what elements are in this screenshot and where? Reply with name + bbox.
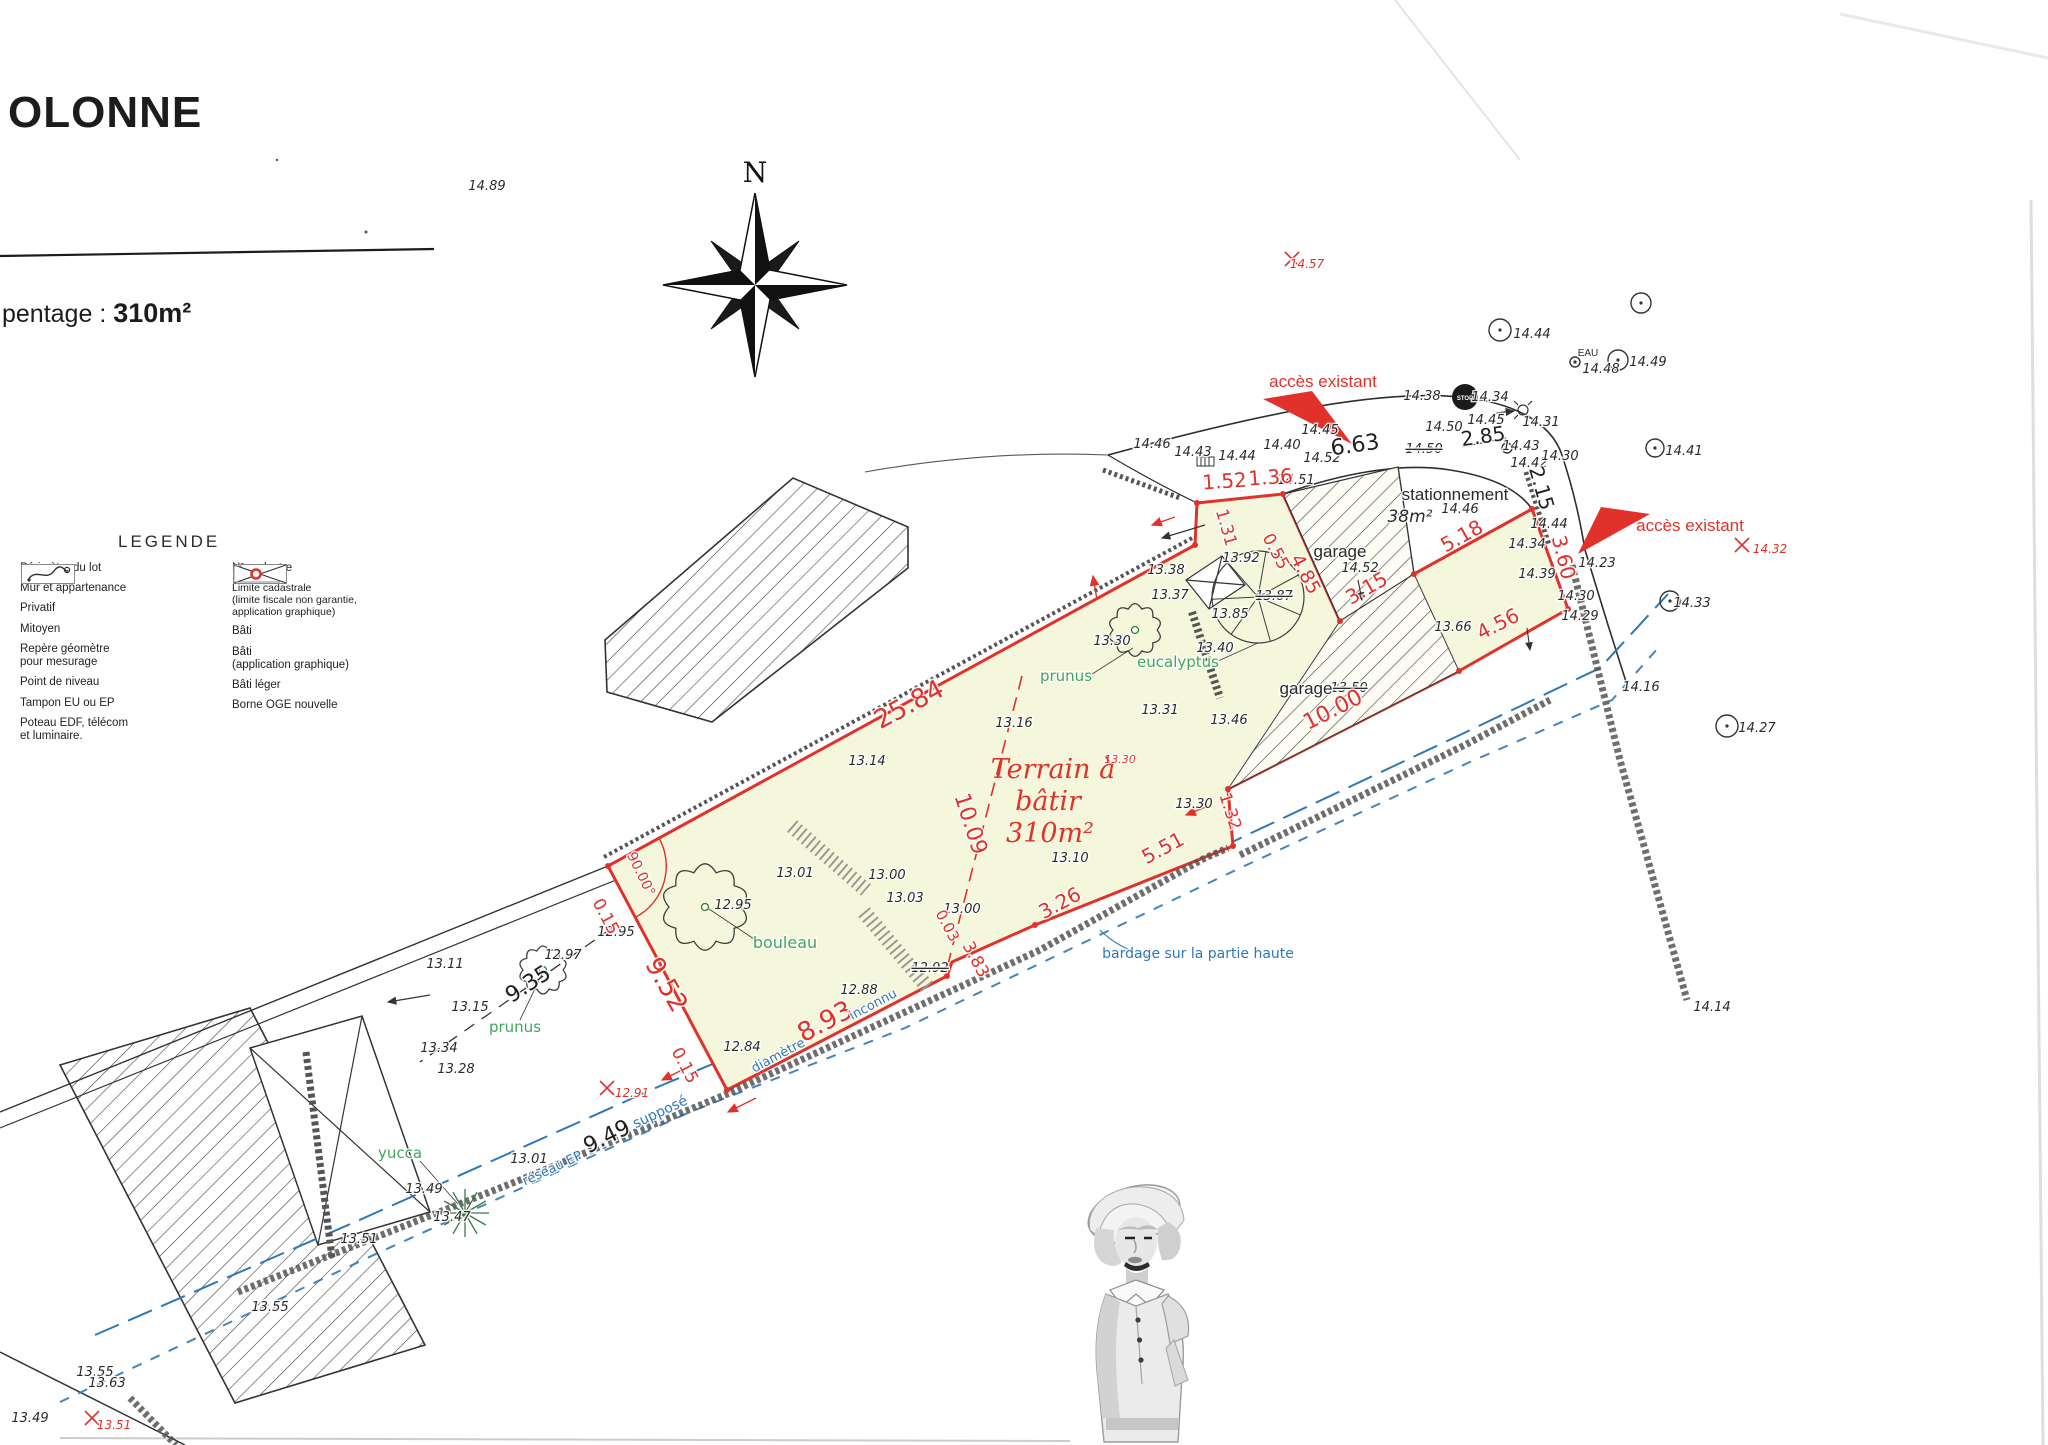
elevation-label: 14.50: [1405, 442, 1442, 457]
legend-item-niveau: 10.47 Point de niveau: [20, 676, 235, 689]
elevation-label: 13.92: [1222, 551, 1259, 566]
legend-item-borne: Borne OGE nouvelle: [232, 699, 447, 712]
legend-item-bati-app: Bâti (application graphique): [232, 646, 447, 672]
parcel-title: 310m²: [1006, 818, 1094, 849]
manhole-dot: [1498, 328, 1501, 331]
elevation-label: 14.41: [1665, 444, 1702, 459]
elevation-label: 14.49: [1629, 355, 1666, 370]
compass-rose: N: [663, 156, 847, 377]
manhole-dot: [1653, 446, 1656, 449]
red-point-label: 13.51: [97, 1418, 131, 1432]
survey-cross-icon: [1735, 538, 1749, 552]
elevation-label: 13.10: [1051, 851, 1088, 866]
vegetation-label: prunus: [489, 1018, 541, 1036]
tree-trunk: [702, 904, 709, 911]
feature-label: garage: [1314, 542, 1367, 561]
feature-label: EAU: [1578, 348, 1599, 359]
legend-right-column: AH n°742 N° cadastre Limite cadastrale (…: [232, 562, 447, 720]
dimension-label: 9.49: [580, 1115, 635, 1159]
elevation-label: 13.51: [340, 1232, 377, 1247]
elevation-label: 14.16: [1622, 680, 1659, 695]
feature-label: garage: [1280, 679, 1333, 698]
feature-label: stationnement: [1402, 485, 1509, 504]
elevation-label: 12.88: [840, 983, 877, 998]
elevation-label: 13.85: [1211, 607, 1248, 622]
elevation-label: 13.00: [868, 868, 905, 883]
elevation-label: 14.29: [1561, 609, 1598, 624]
elevation-label: 13.30: [1175, 797, 1212, 812]
survey-cross-icon: [600, 1081, 614, 1095]
photo-woman-collage: [1081, 1175, 1188, 1442]
elevation-label: 14.50: [1425, 420, 1462, 435]
feature-label: 38m²: [1387, 507, 1432, 527]
elevation-label: 12.97: [544, 948, 582, 963]
elevation-label: 14.44: [1218, 449, 1255, 464]
elevation-label: 13.46: [1210, 713, 1247, 728]
elevation-label: 12.84: [723, 1040, 760, 1055]
elevation-label: 13.16: [995, 716, 1032, 731]
elevation-label: 13.30: [1093, 634, 1130, 649]
legend-label: Limite cadastrale (limite fiscale non ga…: [232, 582, 357, 618]
elevation-label: 14.27: [1738, 721, 1776, 736]
legend-item-poteau: Poteau EDF, télécom et luminaire.: [20, 717, 235, 743]
elevation-label: 13.63: [88, 1376, 125, 1391]
elevation-label: 13.47: [433, 1210, 471, 1225]
elevation-label: 14.31: [1522, 415, 1559, 430]
parcel-title: Terrain à: [991, 754, 1116, 785]
elevation-label: 14.40: [1263, 438, 1300, 453]
elevation-label: 14.46: [1133, 437, 1170, 452]
manhole-dot: [1573, 360, 1576, 363]
elevation-label: 14.48: [1582, 362, 1619, 377]
legend-item-repere: 10.47 Repère géomètre pour mesurage: [20, 643, 235, 669]
vegetation-label: prunus: [1040, 667, 1092, 685]
elevation-label: 13.49: [11, 1411, 48, 1426]
dimension-label: 6.63: [1329, 430, 1381, 462]
legend-label: Bâti (application graphique): [232, 646, 349, 672]
access-label: accès existant: [1269, 372, 1377, 391]
elevation-label: 14.44: [1530, 517, 1567, 532]
borne-oge-icon: [232, 562, 288, 586]
elevation-label: 12.95: [714, 898, 751, 913]
elevation-label: 13.11: [426, 957, 463, 972]
header-rule: [0, 249, 434, 256]
parcel-title: bâtir: [1015, 786, 1083, 817]
elevation-label: 14.23: [1578, 556, 1615, 571]
legend-label: Mitoyen: [20, 623, 60, 636]
area-prefix: pentage :: [2, 300, 106, 328]
red-point-label: 12.91: [615, 1086, 649, 1100]
elevation-label: 13.15: [451, 1000, 488, 1015]
elevation-label: 14.43: [1502, 439, 1539, 454]
north-label: N: [743, 156, 768, 189]
dimension-label: 2.85: [1459, 421, 1506, 451]
elevation-label: 14.39: [1518, 567, 1555, 582]
legend-label: Privatif: [20, 602, 55, 615]
legend-label: Repère géomètre pour mesurage: [20, 643, 110, 669]
legend-label: Tampon EU ou EP: [20, 697, 115, 710]
elevation-label: 14.38: [1403, 389, 1440, 404]
elevation-label: 12.92: [911, 961, 948, 976]
elevation-label: 14.34: [1508, 537, 1545, 552]
vegetation-label: eucalyptus: [1137, 653, 1219, 671]
scanned-survey-plan: N 14.8914.44EAU14.4814.4914.4114.4614.43…: [0, 0, 2048, 1445]
elevation-label: 14.34: [1471, 390, 1508, 405]
elevation-label: 14.30: [1557, 589, 1594, 604]
elevation-label: 13.66: [1434, 620, 1471, 635]
elevation-label: 13.01: [776, 866, 813, 881]
area-value: 310m²: [113, 298, 191, 328]
red-dimension-label: 1.52: [1201, 467, 1247, 494]
red-point-label: 14.57: [1290, 257, 1325, 271]
legend-label: Poteau EDF, télécom et luminaire.: [20, 717, 128, 743]
elevation-label: 14.33: [1673, 596, 1710, 611]
legend-item-tampon: 10.47 Tampon EU ou EP: [20, 697, 235, 710]
elevation-label: 14.89: [468, 179, 505, 194]
legend-label: Bâti léger: [232, 679, 281, 692]
plan-title: OLONNE: [8, 88, 202, 138]
legend-item-bati: Bâti: [232, 625, 447, 638]
legend-item-mitoyen: Mitoyen: [20, 623, 235, 636]
tree-trunk: [1132, 627, 1139, 634]
elevation-label: 13.28: [437, 1062, 474, 1077]
network-label: bardage sur la partie haute: [1102, 946, 1294, 962]
elevation-label: 13.55: [251, 1300, 288, 1315]
legend-item-privatif: Privatif: [20, 602, 235, 615]
plan-area: pentage : 310m²: [2, 298, 191, 329]
legend-left-column: Périmètre du lot Mur et appartenance Pri…: [20, 562, 235, 750]
legend-title: LEGENDE: [118, 532, 220, 552]
elevation-label: 13.31: [1141, 703, 1178, 718]
dimension-label: 9.35: [501, 961, 556, 1009]
manhole-dot: [1725, 724, 1728, 727]
elevation-label: 14.43: [1174, 445, 1211, 460]
elevation-label: 14.44: [1513, 327, 1550, 342]
elevation-label: 13.37: [1151, 588, 1189, 603]
manhole-dot: [1668, 599, 1671, 602]
elevation-label: 14.14: [1693, 1000, 1730, 1015]
legend-item-bati-leger: Bâti léger: [232, 679, 447, 692]
legend-item-limite: Limite cadastrale (limite fiscale non ga…: [232, 582, 447, 618]
vegetation-label: yucca: [378, 1144, 422, 1162]
red-dimension-label: 1.36: [1247, 463, 1293, 490]
stop-sign-label: STOP: [1457, 396, 1473, 402]
legend-label: Borne OGE nouvelle: [232, 699, 337, 712]
elevation-label: 13.87: [1255, 589, 1293, 604]
site-plan-drawing: N 14.8914.44EAU14.4814.4914.4114.4614.43…: [0, 0, 2048, 1445]
elevation-label: 13.34: [420, 1041, 457, 1056]
elevation-label: 13.49: [405, 1182, 442, 1197]
legend-label: Bâti: [232, 625, 252, 638]
poteau-icon: [20, 562, 76, 586]
elevation-label: 14.30: [1541, 449, 1578, 464]
red-point-label: 14.32: [1753, 542, 1787, 556]
legend-label: Point de niveau: [20, 676, 99, 689]
elevation-label: 13.03: [886, 891, 923, 906]
elevation-label: 13.38: [1147, 563, 1184, 578]
elevation-label: 13.14: [848, 754, 885, 769]
manhole-dot: [1639, 301, 1642, 304]
vegetation-label: bouleau: [753, 933, 817, 952]
neighbor-building: [605, 478, 908, 722]
access-label: accès existant: [1636, 516, 1744, 535]
